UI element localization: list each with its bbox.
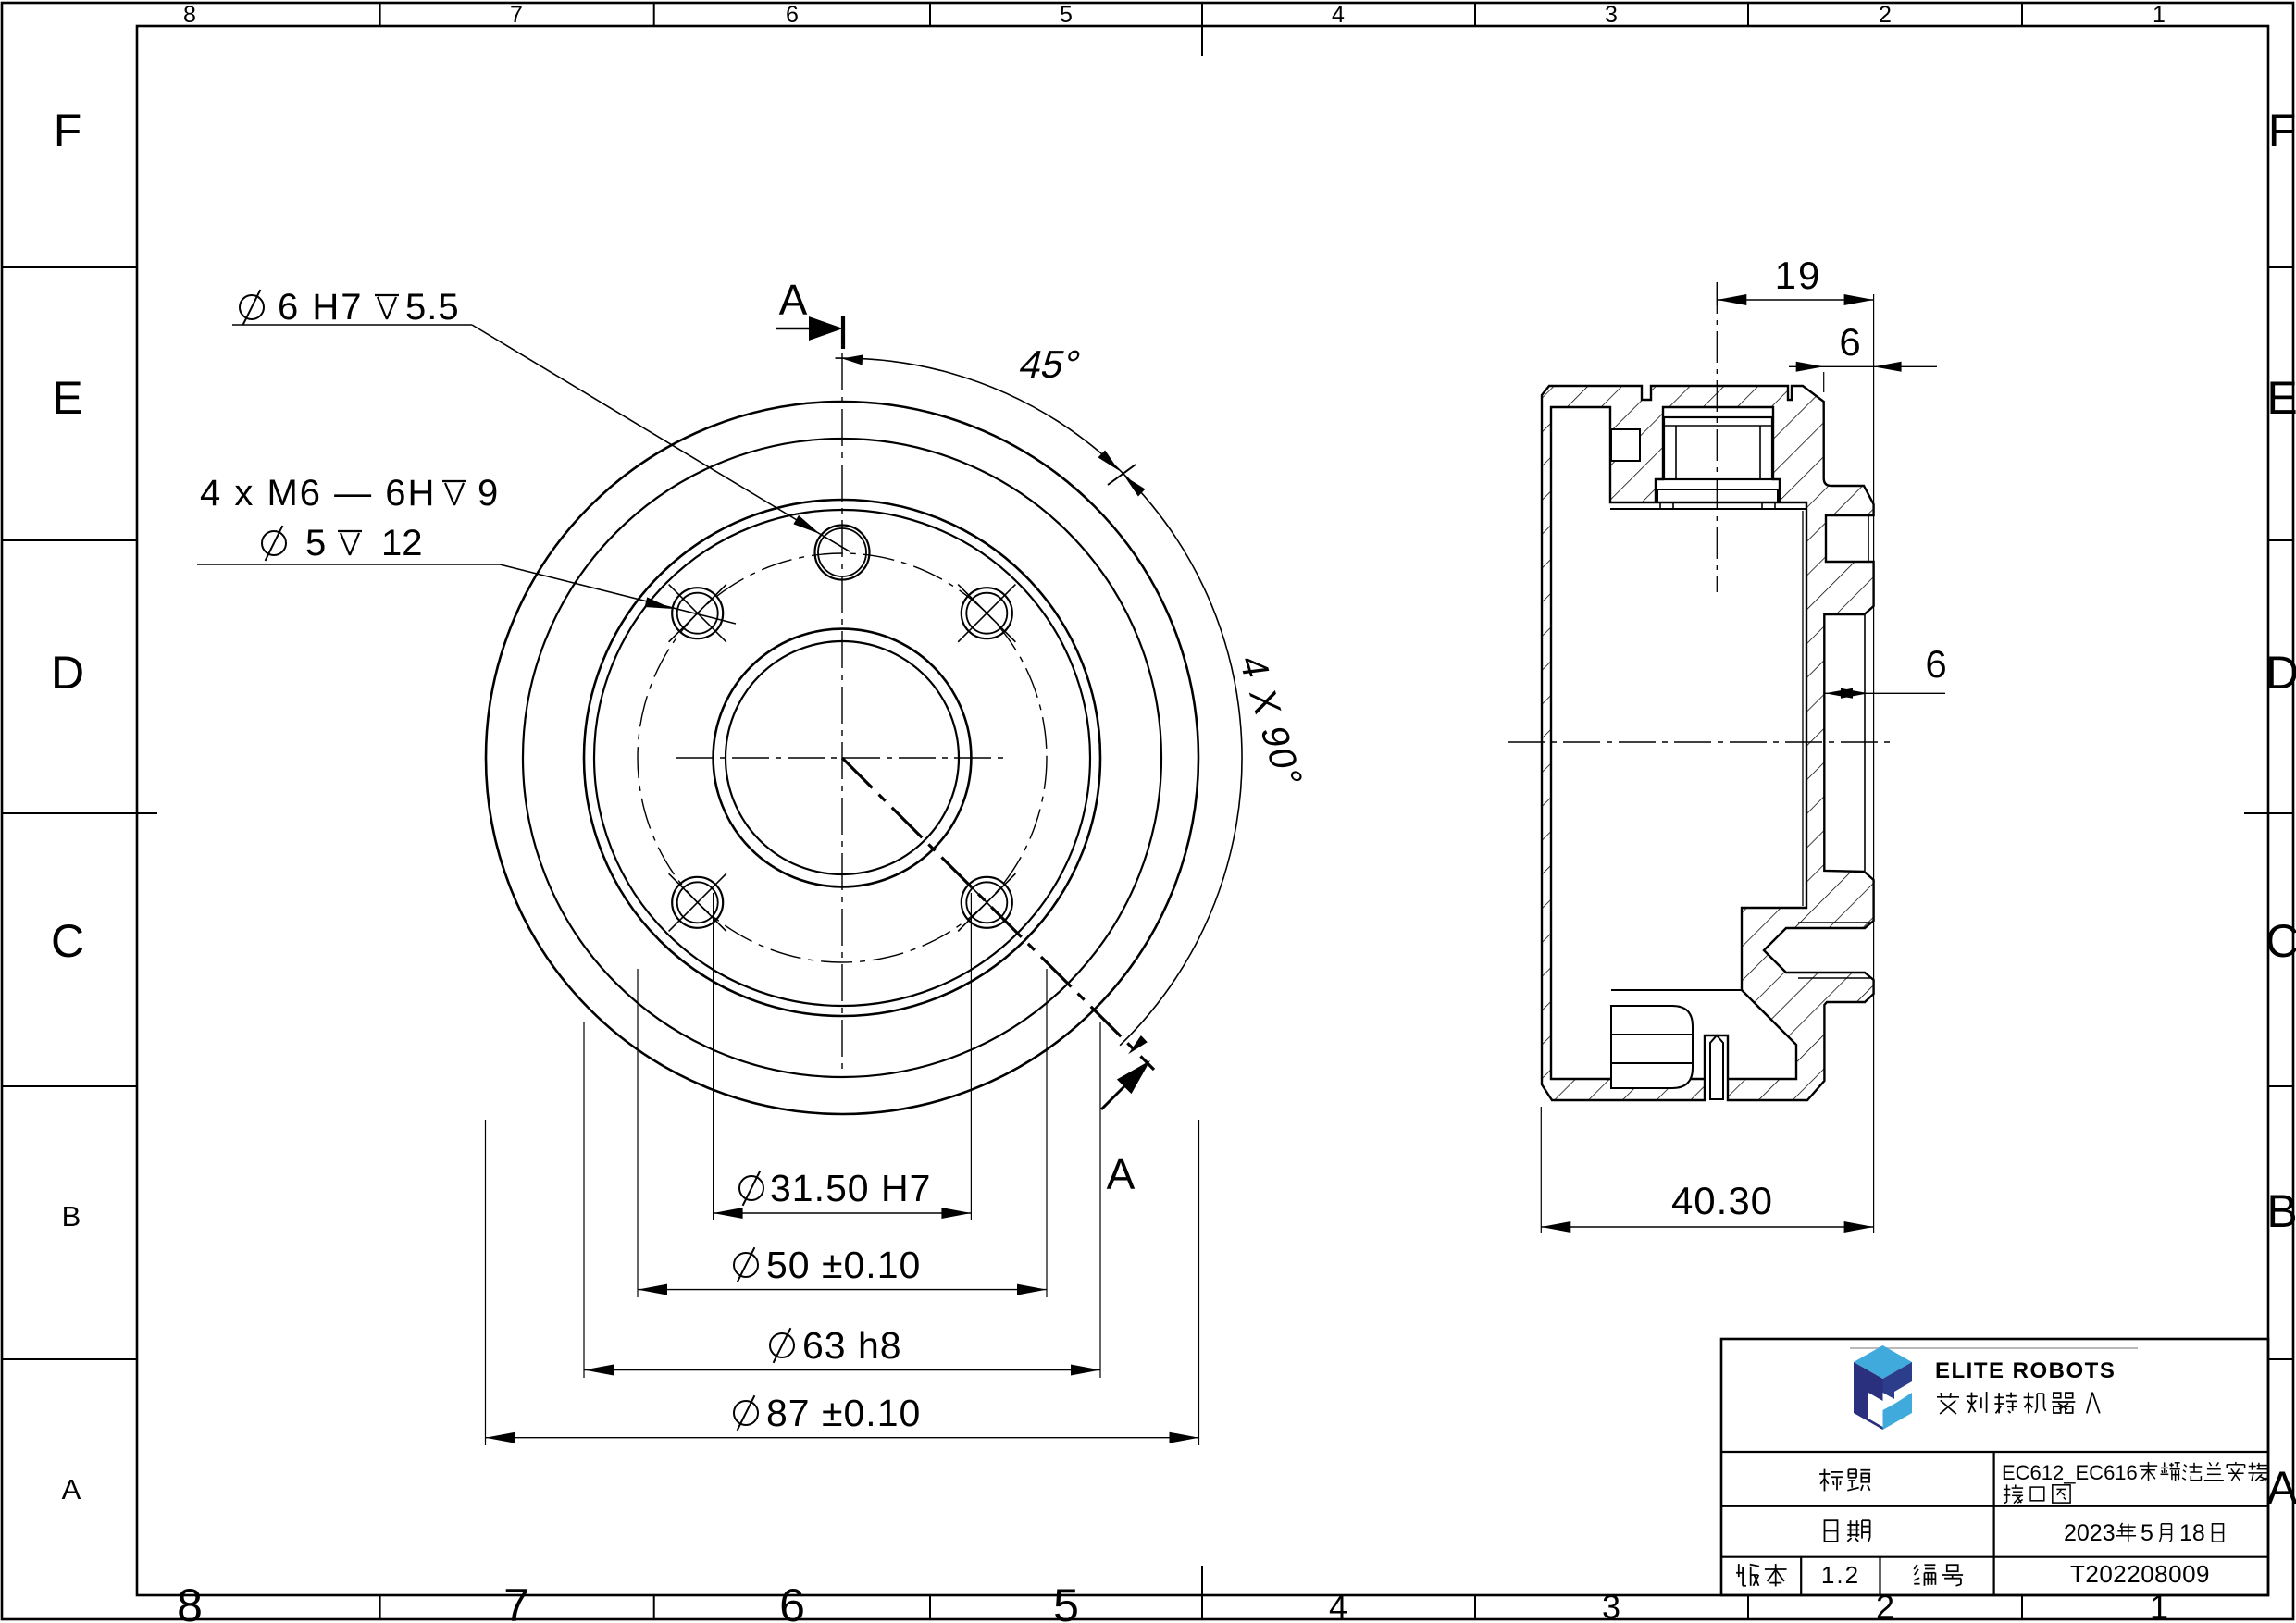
svg-text:6: 6 (786, 2, 799, 28)
svg-text:45°: 45° (1015, 343, 1085, 387)
svg-text:B: B (62, 1200, 81, 1233)
svg-text:A: A (2266, 1462, 2296, 1514)
svg-text:87 ±0.10: 87 ±0.10 (766, 1392, 921, 1434)
svg-text:3: 3 (1605, 2, 1618, 28)
svg-text:T202208009: T202208009 (2070, 1560, 2210, 1588)
svg-text:2023: 2023 (2064, 1520, 2116, 1546)
svg-text:A: A (62, 1473, 81, 1505)
svg-text:2: 2 (1879, 2, 1892, 28)
svg-text:3: 3 (1602, 1588, 1620, 1623)
svg-text:4 x M6 — 6H: 4 x M6 — 6H (200, 473, 436, 514)
svg-text:2: 2 (1876, 1588, 1894, 1623)
svg-text:4: 4 (1329, 1588, 1347, 1623)
svg-text:7: 7 (503, 1580, 529, 1623)
svg-text:1: 1 (2153, 2, 2166, 28)
svg-text:9: 9 (478, 473, 498, 514)
svg-text:EC612_EC616: EC612_EC616 (2002, 1461, 2138, 1484)
svg-text:ELITE ROBOTS: ELITE ROBOTS (1935, 1358, 2116, 1383)
svg-text:6: 6 (779, 1580, 805, 1623)
svg-text:A: A (779, 276, 808, 324)
svg-text:1: 1 (2150, 1588, 2168, 1623)
svg-text:D: D (51, 647, 84, 699)
svg-text:F: F (54, 105, 82, 156)
svg-text:D: D (2265, 647, 2296, 699)
svg-text:F: F (2268, 105, 2296, 156)
svg-text:6 H7: 6 H7 (278, 287, 364, 328)
svg-text:18: 18 (2179, 1520, 2205, 1546)
svg-text:1.2: 1.2 (1821, 1561, 1860, 1589)
svg-text:40.30: 40.30 (1671, 1179, 1773, 1222)
svg-text:5: 5 (1053, 1580, 1079, 1623)
svg-text:8: 8 (177, 1580, 203, 1623)
svg-text:A: A (1107, 1150, 1136, 1198)
svg-text:B: B (2266, 1185, 2296, 1237)
svg-text:E: E (52, 372, 82, 424)
svg-text:31.50 H7: 31.50 H7 (770, 1167, 931, 1209)
svg-text:C: C (51, 915, 84, 967)
svg-text:19: 19 (1775, 254, 1822, 297)
svg-text:C: C (2265, 915, 2296, 967)
svg-text:12: 12 (381, 523, 423, 564)
svg-text:5: 5 (2141, 1520, 2153, 1546)
svg-text:E: E (2266, 372, 2296, 424)
svg-text:6: 6 (1925, 642, 1946, 686)
svg-text:7: 7 (510, 2, 523, 28)
svg-text:6: 6 (1839, 320, 1860, 364)
svg-text:5: 5 (1060, 2, 1073, 28)
svg-text:8: 8 (183, 2, 196, 28)
svg-text:50 ±0.10: 50 ±0.10 (766, 1244, 921, 1286)
svg-text:5: 5 (305, 523, 326, 564)
svg-text:4: 4 (1332, 2, 1345, 28)
svg-text:63 h8: 63 h8 (802, 1324, 902, 1367)
svg-text:5.5: 5.5 (405, 287, 460, 328)
